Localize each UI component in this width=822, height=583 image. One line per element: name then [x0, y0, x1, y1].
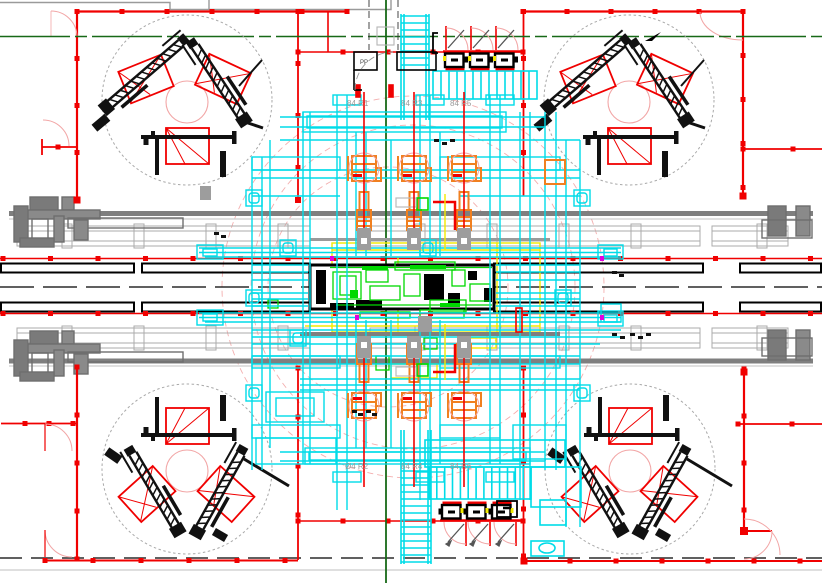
svg-text:84 R4: 84 R4 — [401, 462, 423, 471]
svg-text:Ø4 R2: Ø4 R2 — [345, 462, 369, 471]
svg-text:84 R3: 84 R3 — [401, 99, 423, 108]
svg-text:84 R5: 84 R5 — [450, 99, 472, 108]
svg-text:84 R1: 84 R1 — [347, 99, 369, 108]
svg-text:84 R6: 84 R6 — [450, 462, 472, 471]
